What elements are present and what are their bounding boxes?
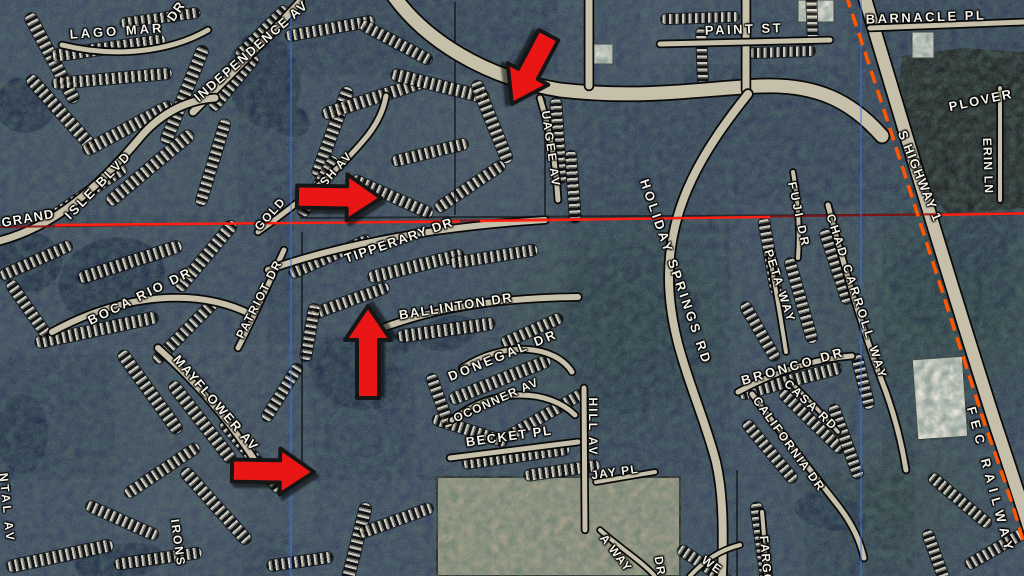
road [52, 298, 252, 332]
water-body [298, 324, 412, 423]
road-casing [540, 98, 558, 200]
parcel-row [104, 128, 196, 208]
parcel-row [233, 3, 290, 60]
street-label-dr: DR [651, 555, 668, 576]
parcel-row [963, 522, 1024, 571]
parcel-row [84, 499, 160, 541]
neighborhood-area [288, 480, 440, 576]
parcel-row [120, 7, 201, 28]
road-casing [52, 298, 252, 332]
parcel-row [0, 239, 74, 281]
street-label-isle-blvd: ISLE BLVD [62, 148, 135, 223]
parcel-row [122, 441, 201, 499]
parcel-row [784, 256, 819, 344]
neighborhood-area [0, 225, 268, 355]
parcel-row [431, 413, 509, 448]
open-field [437, 477, 680, 576]
road [600, 530, 655, 576]
street-label-peta-way: PETA WAY [762, 248, 799, 325]
road-casing [596, 472, 655, 482]
road [793, 172, 799, 258]
roads-group [0, 0, 1024, 576]
street-label-mayflower-av: MAYFLOWER AV [170, 352, 262, 454]
road [393, 0, 882, 136]
street-label-becket-pl: BECKET PL [465, 423, 553, 450]
parcel-row [310, 85, 354, 178]
arrows-group [232, 24, 569, 495]
road-casing [393, 0, 882, 136]
boundary-lines [300, 2, 1024, 576]
building [585, 44, 613, 64]
road [238, 250, 284, 348]
road [268, 220, 545, 270]
fec-railway-line [846, 0, 1024, 576]
street-label-barnacle-pl: BARNACLE PL [865, 7, 986, 26]
red-section-line-bright [930, 214, 1024, 216]
parcel-row [179, 466, 253, 547]
street-label-patriot-dr: PATRIOT DR [233, 257, 285, 340]
vegetation-mottle-texture [0, 0, 1024, 576]
parcel-row [448, 354, 553, 406]
road [540, 98, 558, 200]
road [584, 388, 585, 530]
street-label-a-way: A WAY [597, 531, 635, 574]
parcel-row [505, 387, 587, 441]
street-label-bronco-dr: BRONCO DR [739, 344, 846, 388]
parcel-row [367, 248, 465, 283]
road [828, 205, 906, 470]
parcel-row [195, 117, 232, 206]
parcel-row [397, 317, 496, 343]
road-casing [268, 220, 545, 270]
parcel-row [23, 11, 81, 105]
road [690, 545, 740, 576]
parcel-row [806, 0, 818, 44]
street-label-holiday-springs-rd: HOLIDAY SPRINGS RD [637, 177, 715, 367]
street-label-california-dr: CALIFORNIA DR [750, 394, 828, 494]
parcel-row [739, 300, 782, 363]
red-section-line-bright [480, 217, 770, 221]
road-casing [584, 388, 585, 530]
building [798, 0, 834, 22]
street-label-ballinton-dr: BALLINTON DR [398, 290, 514, 323]
road [669, 94, 748, 576]
parcel-row [218, 417, 286, 495]
parcel-row [350, 173, 435, 219]
road-casing [0, 98, 215, 242]
annotation-arrows-layer [0, 0, 1024, 576]
street-label-independence-av: INDEPENDENCE AV [191, 0, 311, 105]
street-label-boca-rio-dr: BOCA RIO DR [85, 264, 194, 328]
road-casing [462, 349, 572, 372]
parcel-row [288, 233, 373, 279]
road [193, 2, 300, 112]
section-boundary [300, 214, 1024, 218]
road [660, 40, 830, 44]
parcel-row [450, 244, 539, 269]
neighborhood-area [675, 475, 805, 576]
parcel-row [52, 67, 173, 88]
water-body [0, 232, 62, 292]
street-label-sh-av: SH AV [317, 149, 355, 189]
neighborhood-area [640, 0, 848, 64]
parcel-row [34, 311, 159, 349]
parcel-row [819, 227, 854, 305]
parcel-row [321, 76, 427, 121]
road [790, 382, 838, 432]
parcel-row [166, 379, 237, 465]
parcel-row [550, 97, 567, 183]
road-casing [793, 172, 799, 258]
parcel-row [661, 12, 739, 25]
red-section-line [0, 213, 1024, 227]
water-body [890, 234, 1014, 334]
parcel-row [750, 502, 774, 576]
neighborhood-area [915, 440, 1024, 576]
neighborhood-area [0, 480, 242, 576]
neighborhood-area [558, 0, 683, 88]
road-casing [660, 40, 830, 44]
parcel-row [267, 551, 334, 571]
building [912, 32, 934, 58]
parcel-row [114, 546, 203, 569]
parcel-row [741, 418, 800, 485]
parcel-row [462, 443, 571, 470]
parcel-row [827, 402, 864, 479]
street-labels-layer: LAGO MARINDEPENDENCE AVDRGRANDISLE BLVDB… [0, 0, 1024, 576]
parcel-row [696, 28, 708, 84]
road [870, 22, 1024, 28]
annotation-arrow-4 [232, 448, 315, 495]
road [596, 472, 655, 482]
road-casing [762, 512, 766, 576]
road [450, 442, 578, 458]
street-label-fec-railway: FEC RAILWAY [964, 405, 1018, 557]
street-label-tipperary-dr: TIPPERARY DR [343, 214, 456, 265]
neighborhood-area [0, 0, 238, 215]
parcel-row [50, 34, 166, 62]
parcel-row [310, 281, 391, 319]
neighborhood-area [295, 75, 557, 225]
road-casing [600, 530, 655, 576]
parcel-row [676, 543, 737, 576]
street-label-dr: DR [164, 0, 188, 24]
street-label-irons: IRONS [168, 518, 189, 567]
annotation-arrow-3 [345, 306, 391, 398]
parcel-row [524, 459, 601, 480]
dark-commercial-area [896, 48, 1024, 214]
road [738, 356, 852, 392]
road-casing [158, 348, 262, 472]
map-base-layer [0, 0, 1024, 576]
parcel-row [921, 528, 950, 576]
street-label-erin-ln: ERIN LN [980, 138, 996, 195]
road-casing [864, 0, 1024, 576]
street-label-gold: GOLD [252, 195, 289, 234]
road-casing [828, 205, 906, 470]
water-body [0, 394, 48, 474]
parcel-row [285, 15, 376, 41]
parcel-row [77, 240, 183, 285]
street-label-chad-carroll-way: CHAD CARROLL WAY [823, 212, 890, 382]
neighborhood-area [295, 225, 567, 337]
street-label-lago-mar: LAGO MAR [69, 20, 165, 42]
street-label-plover: PLOVER [947, 86, 1014, 114]
water-body [49, 225, 175, 334]
street-label-uagee-av: UAGEE AV [539, 110, 564, 189]
road [452, 395, 575, 420]
street-label-ntal-av: NTAL AV [0, 472, 18, 544]
water-layer [0, 26, 1024, 576]
street-label-s-highway-1: S HIGHWAY 1 [895, 128, 945, 224]
road [258, 96, 386, 232]
road [752, 394, 864, 558]
water-body [378, 326, 418, 354]
road-casing [450, 442, 578, 458]
building [912, 356, 967, 439]
road [462, 349, 572, 372]
parcel-row [151, 295, 221, 365]
road [762, 512, 766, 576]
parcel-row [24, 73, 96, 152]
road [770, 258, 786, 352]
water-body [263, 97, 315, 142]
neighborhood-area [730, 205, 882, 473]
parcel-row [5, 278, 52, 338]
parcel-row [758, 217, 782, 296]
road-casing [452, 395, 575, 420]
road-casing [193, 2, 300, 112]
road [158, 348, 262, 472]
parcel-rows-layer [0, 0, 1024, 576]
parcel-row [296, 154, 340, 218]
water-body [931, 198, 1024, 285]
parcel-row [470, 79, 514, 165]
street-label-we: WE [699, 553, 725, 576]
parcel-row [357, 501, 434, 538]
parcel-row [927, 471, 994, 530]
parcel-row [116, 348, 184, 436]
zones-layer [437, 0, 1024, 576]
street-label-fuji-dr: FUJI DR [785, 180, 813, 249]
parcel-row [260, 361, 304, 423]
road-casing [669, 94, 748, 576]
road [0, 98, 215, 242]
water-body [560, 246, 704, 414]
neighborhood-area [415, 335, 593, 475]
parcel-row [81, 99, 175, 157]
parcel-row [851, 353, 875, 410]
parcel-row [159, 44, 209, 146]
neighborhood-area [115, 345, 313, 533]
road-casing [752, 394, 864, 558]
neighborhood-tints [0, 0, 1024, 576]
parcel-row [390, 68, 490, 104]
parcel-row [500, 312, 565, 349]
parcel-row [48, 162, 129, 221]
road-casing [790, 382, 838, 432]
road-casing [690, 545, 740, 576]
parcel-row [300, 302, 321, 361]
overlay-lines-group [0, 0, 1024, 576]
parcel-row [433, 159, 507, 214]
street-label-donegal-dr: DONEGAL DR [446, 326, 560, 384]
parcel-row [391, 137, 469, 167]
aerial-map[interactable]: LAGO MARINDEPENDENCE AVDRGRANDISLE BLVDB… [0, 0, 1024, 576]
roads-layer [0, 0, 1024, 576]
street-label-jay-pl: JAY PL [590, 462, 639, 483]
street-label-casa-rd: CASA RD [781, 377, 840, 434]
water-body [72, 538, 168, 576]
street-label-grand: GRAND [0, 206, 55, 230]
water-body [0, 77, 55, 133]
road [62, 30, 208, 52]
parcel-row [173, 218, 239, 293]
parcel-row [425, 372, 454, 428]
red-section-line-bright [55, 222, 460, 226]
fine-noise-texture [0, 0, 1024, 576]
parcel-row [340, 502, 373, 576]
water-body [988, 58, 1024, 98]
street-label-hill-av: HILL AV [586, 397, 600, 456]
road [372, 297, 578, 332]
road-casing [238, 250, 284, 348]
street-label-fargo: FARGO [757, 535, 775, 576]
street-label-oconner-av: OCONNER AV [451, 375, 541, 425]
annotation-arrow-1 [492, 24, 569, 114]
parcel-row [737, 361, 842, 400]
road [864, 0, 1024, 576]
annotation-arrow-2 [297, 174, 382, 221]
parcel-row [358, 18, 434, 65]
water-body [415, 309, 481, 357]
parcel-row [749, 46, 815, 58]
road-casing [258, 96, 386, 232]
parcel-row [777, 387, 847, 455]
road-casing [770, 258, 786, 352]
parcel-row [207, 52, 260, 113]
street-label-paint-st: PAINT ST [705, 20, 784, 38]
road-casing [738, 356, 852, 392]
parcel-row [6, 539, 114, 573]
road-casing [870, 22, 1024, 28]
road-casing [62, 30, 208, 52]
water-body [220, 26, 308, 133]
water-body [791, 488, 868, 536]
parcel-row [565, 150, 581, 223]
road-casing [372, 297, 578, 332]
